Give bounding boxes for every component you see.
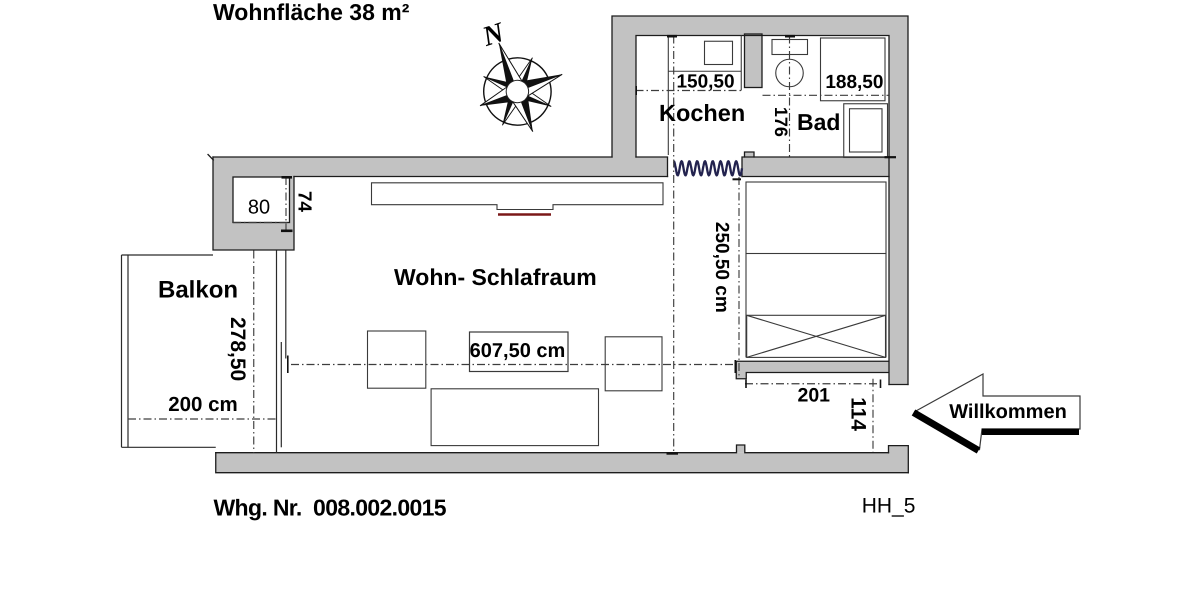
svg-text:Kochen: Kochen (659, 100, 745, 126)
svg-text:Willkommen: Willkommen (949, 401, 1067, 423)
svg-text:176: 176 (771, 107, 791, 137)
svg-text:188,50: 188,50 (825, 72, 883, 93)
svg-text:150,50: 150,50 (676, 72, 734, 93)
svg-text:HH_5: HH_5 (862, 495, 916, 518)
svg-text:74: 74 (294, 191, 315, 213)
svg-text:607,50 cm: 607,50 cm (470, 340, 566, 362)
svg-text:250,50 cm: 250,50 cm (711, 222, 732, 313)
svg-text:80: 80 (248, 197, 270, 219)
svg-text:200 cm: 200 cm (168, 393, 238, 416)
svg-text:Balkon: Balkon (158, 277, 238, 304)
svg-text:Bad: Bad (797, 109, 840, 135)
svg-text:Wohnfläche 38 m²: Wohnfläche 38 m² (213, 0, 410, 25)
svg-text:Whg. Nr. 008.002.0015: Whg. Nr. 008.002.0015 (214, 495, 447, 521)
svg-text:278,50: 278,50 (226, 317, 249, 381)
svg-text:114: 114 (847, 397, 870, 431)
svg-text:Wohn- Schlafraum: Wohn- Schlafraum (394, 264, 597, 290)
svg-text:201: 201 (797, 385, 830, 407)
